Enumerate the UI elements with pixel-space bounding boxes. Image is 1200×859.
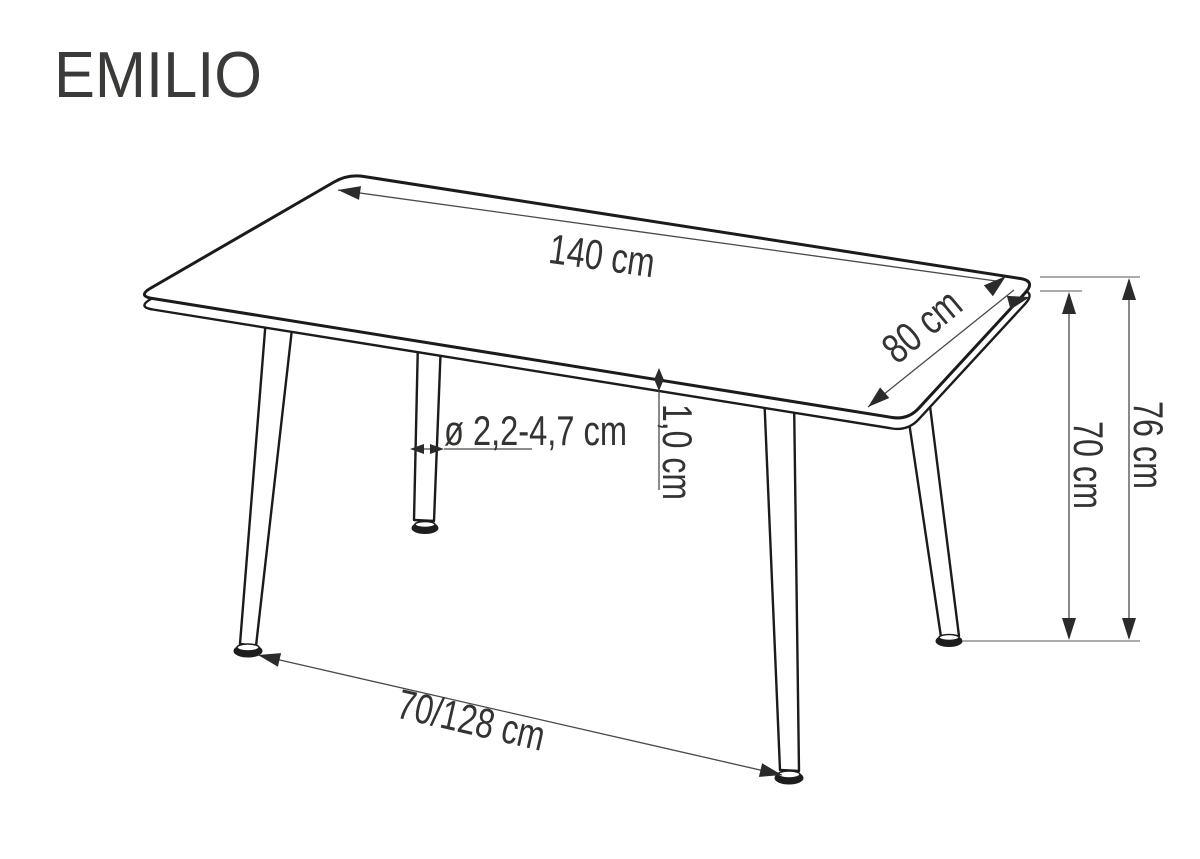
leg-foot-cap-front-left	[237, 644, 259, 651]
arrowhead-icon	[1062, 618, 1076, 640]
table-leg-rear-left	[412, 340, 441, 534]
dimension-leg-diameter: ø 2,2-4,7 cm	[410, 407, 627, 454]
leg-front-right-shape	[764, 392, 799, 771]
table-leg-front-left	[234, 318, 293, 657]
technical-drawing-page: EMILIO	[0, 0, 1200, 859]
table-leg-rear-right	[906, 402, 962, 647]
arrowhead-icon	[1062, 292, 1076, 314]
dimension-leg-span: 70/128 cm	[258, 653, 782, 777]
dimension-label-total-height: 76 cm	[1125, 401, 1172, 489]
dimension-label-leg-diameter: ø 2,2-4,7 cm	[444, 407, 627, 454]
arrowhead-icon	[1122, 278, 1136, 300]
arrowhead-icon	[258, 653, 281, 667]
leg-foot-cap-rear-right	[939, 635, 959, 641]
dimension-label-under-top-height: 70 cm	[1065, 421, 1112, 509]
arrowhead-icon	[1122, 618, 1136, 640]
dimension-label-leg-span: 70/128 cm	[393, 680, 550, 760]
leg-front-left-shape	[240, 318, 293, 646]
product-title: EMILIO	[54, 38, 262, 111]
table-leg-front-right	[764, 392, 803, 784]
dimension-label-top-thickness: 1,0 cm	[654, 404, 701, 500]
leg-foot-cap-rear-left	[415, 522, 435, 528]
arrowhead-icon	[759, 763, 782, 777]
leg-rear-right-shape	[906, 402, 959, 637]
table-dimension-diagram: EMILIO	[0, 0, 1200, 859]
leg-rear-left-shape	[414, 340, 441, 521]
